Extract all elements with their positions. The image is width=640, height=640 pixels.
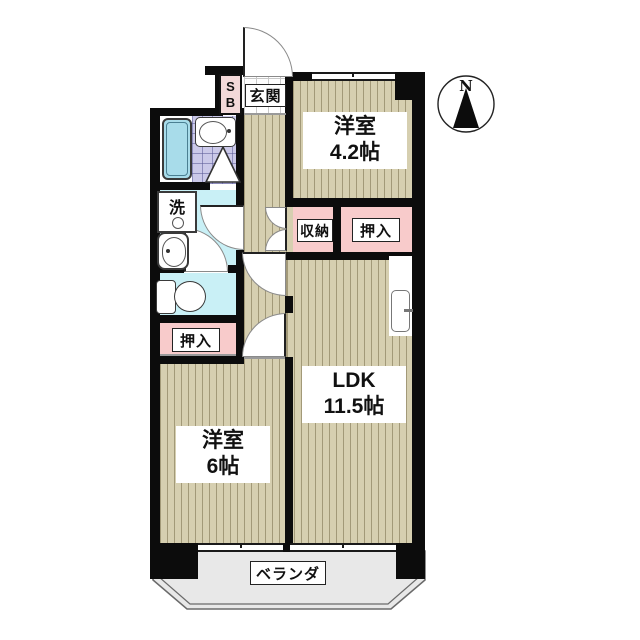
floor-plan: 洗 S B 玄関 収納 押入 押入 ベランダ 洋室 4.2帖 LDK 11.5帖… [0, 0, 640, 640]
bathtub-icon [162, 118, 192, 180]
room-western-6-size: 6帖 [180, 454, 266, 480]
room-ldk-size: 11.5帖 [306, 394, 402, 420]
laundry-label: 洗 [159, 194, 195, 218]
entrance-label: 玄関 [245, 84, 286, 107]
laundry-drain-icon [172, 217, 184, 229]
window-south-ldk [290, 543, 396, 552]
pillar-bottom-right [396, 543, 425, 579]
wall-storage-divider [333, 207, 341, 252]
compass-icon: N [436, 74, 496, 134]
laundry-space-icon: 洗 [157, 191, 197, 233]
storage-label: 収納 [297, 219, 333, 242]
room-western-4-2-size: 4.2帖 [307, 140, 403, 166]
wall-west6-ldk [285, 357, 293, 545]
bathroom-door-icon [205, 146, 241, 183]
pillar-top-right [395, 72, 425, 100]
room-western-6-label: 洋室 6帖 [176, 426, 270, 483]
wall-bath-top [150, 108, 222, 116]
entrance-step-line [244, 113, 286, 115]
wall-top-mid [290, 72, 312, 81]
shoebox: S B [219, 74, 242, 115]
room-western-6-name: 洋室 [180, 428, 266, 454]
closet-right-label: 押入 [352, 218, 400, 242]
wall-toilet-closet [150, 315, 244, 323]
room-western-4-2-name: 洋室 [307, 114, 403, 140]
kitchen-faucet-icon [404, 309, 413, 312]
wall-bottom-center-post [283, 543, 290, 552]
wall-hall-ldk-mid [285, 296, 293, 313]
wall-bath-washroom [150, 182, 210, 190]
room-western-4-2-label: 洋室 4.2帖 [303, 112, 407, 169]
wall-left [150, 108, 160, 578]
wall-closet-left-bottom [150, 356, 244, 364]
shoebox-label-b: B [226, 95, 235, 111]
toilet-icon [156, 279, 206, 316]
bath-sink-icon [195, 117, 236, 147]
room-ldk-name: LDK [306, 368, 402, 394]
window-south-west6 [198, 543, 283, 552]
closet-left-sliding-line [160, 354, 236, 356]
shoebox-label-s: S [226, 79, 235, 95]
entrance-door-arc-icon [243, 27, 293, 77]
wall-right [412, 98, 425, 545]
wall-west42-bottom [285, 198, 425, 207]
wall-washroom-toilet-right [228, 265, 244, 273]
closet-left-label: 押入 [172, 328, 220, 352]
washbasin-icon [157, 232, 189, 270]
pillar-bottom-left [150, 543, 198, 579]
room-ldk-label: LDK 11.5帖 [302, 366, 406, 423]
window-north [312, 72, 395, 81]
hall-west6-threshold [244, 357, 285, 359]
wall-west42-left [285, 72, 293, 205]
balcony-label: ベランダ [250, 561, 326, 585]
